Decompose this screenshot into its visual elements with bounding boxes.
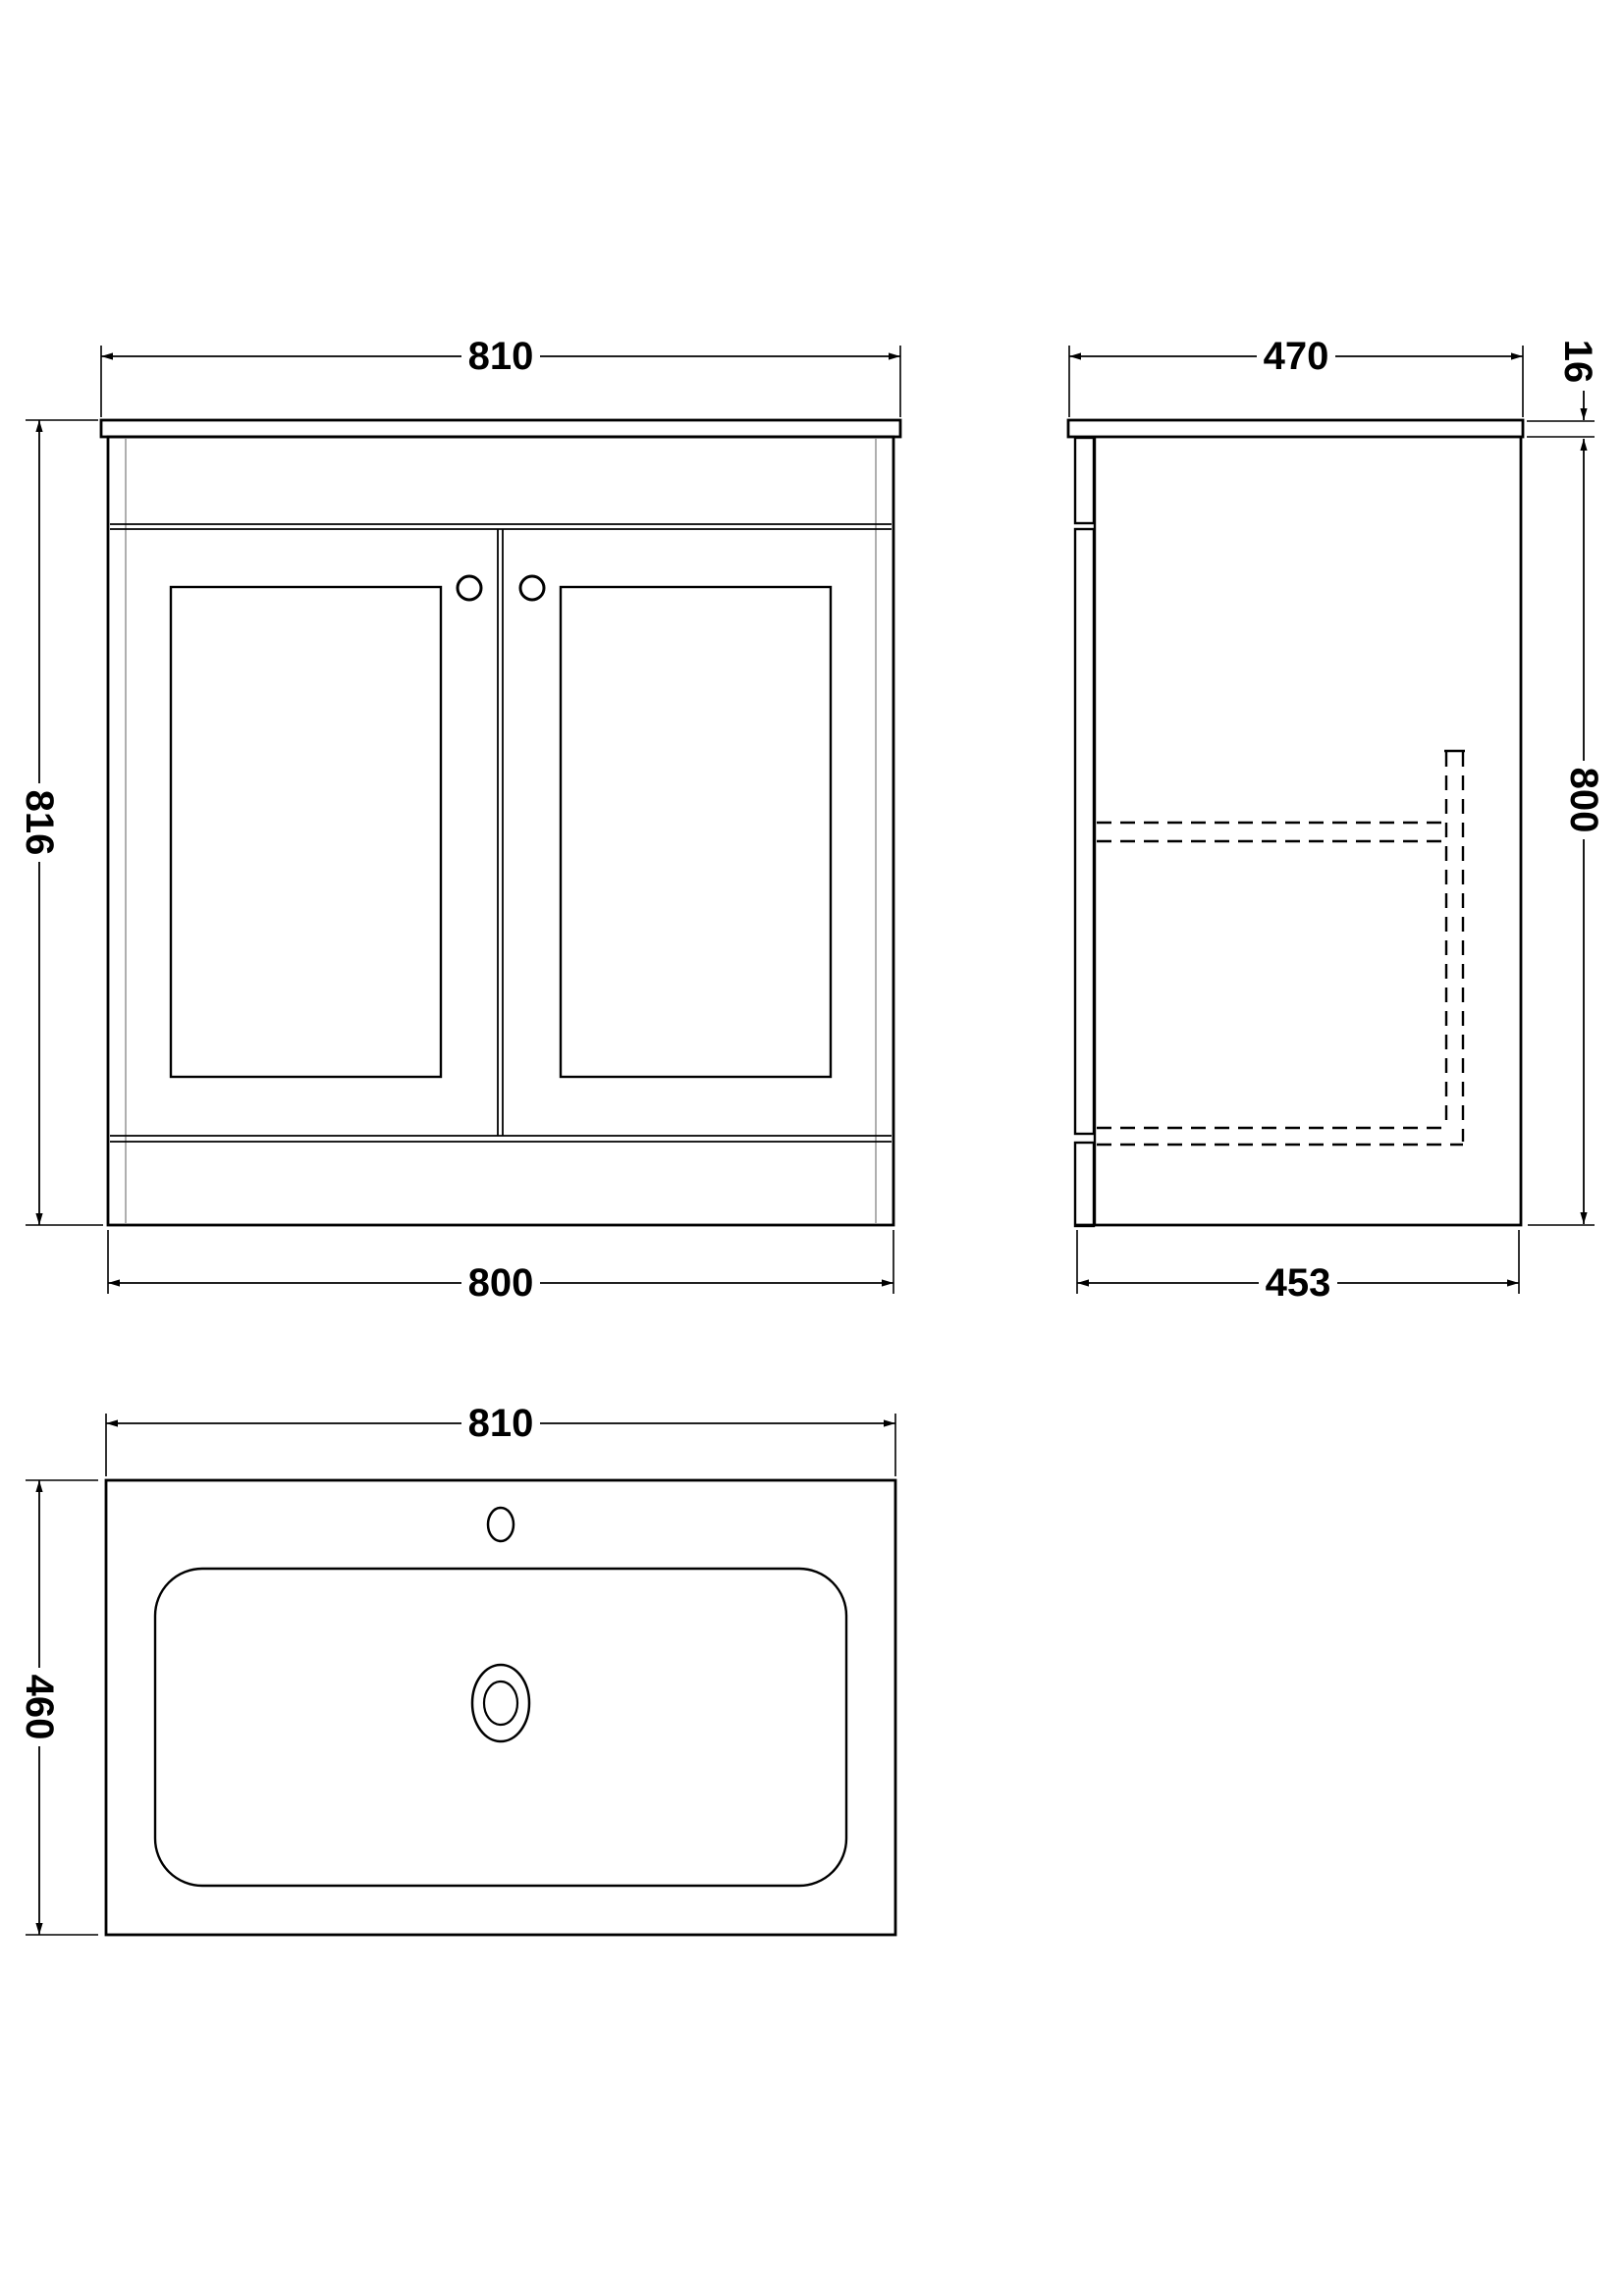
front-view: 810 816 800 [18,335,900,1305]
front-left-door-panel [171,587,441,1077]
basin-depth-dimension: 460 [18,1480,98,1935]
dimension-label: 16 [1556,340,1599,384]
vanity-unit-technical-drawing: 810 816 800 [0,0,1623,2296]
dimension-label: 810 [468,1402,534,1445]
basin-plan-view: 810 460 [18,1402,895,1935]
front-door-split [498,529,503,1136]
side-carcass-outline [1075,438,1521,1225]
dimension-label: 800 [468,1261,534,1305]
front-countertop [101,420,900,437]
front-top-rail-separator [110,524,892,529]
side-hidden-back-partition [1444,751,1465,1142]
side-plinth-edge [1075,1143,1094,1226]
dimension-label: 453 [1266,1261,1331,1305]
dimension-label: 816 [18,790,61,856]
dimension-label: 470 [1264,335,1329,378]
dimension-label: 810 [468,335,534,378]
side-top-rail-edge [1075,438,1094,523]
dimension-label: 800 [1562,768,1605,833]
side-height-dimension: 800 [1528,439,1605,1225]
dimension-label: 460 [18,1675,61,1740]
side-countertop-thickness-dimension: 16 [1527,340,1599,437]
basin-waste-drain [472,1665,529,1741]
side-depth-top-dimension: 470 [1069,335,1523,417]
front-width-top-dimension: 810 [101,335,900,417]
front-right-door-panel [561,587,831,1077]
front-plinth-separator [110,1136,892,1142]
front-left-door-knob [458,576,481,600]
front-cabinet-outline [108,437,893,1225]
side-countertop [1068,420,1523,437]
basin-tap-hole [488,1508,514,1541]
side-door-edge [1075,529,1094,1134]
side-hidden-bottom-shelf [1097,1128,1463,1145]
basin-bowl [155,1569,846,1886]
technical-drawing-page: 810 816 800 [0,0,1623,2296]
basin-width-dimension: 810 [106,1402,895,1476]
side-hidden-mid-shelf [1097,823,1446,841]
front-width-bottom-dimension: 800 [108,1230,893,1305]
basin-outline [106,1480,895,1935]
front-right-door-knob [520,576,544,600]
side-depth-bottom-dimension: 453 [1077,1230,1519,1305]
front-height-dimension: 816 [18,420,103,1225]
side-view: 470 16 800 453 [1068,335,1605,1305]
